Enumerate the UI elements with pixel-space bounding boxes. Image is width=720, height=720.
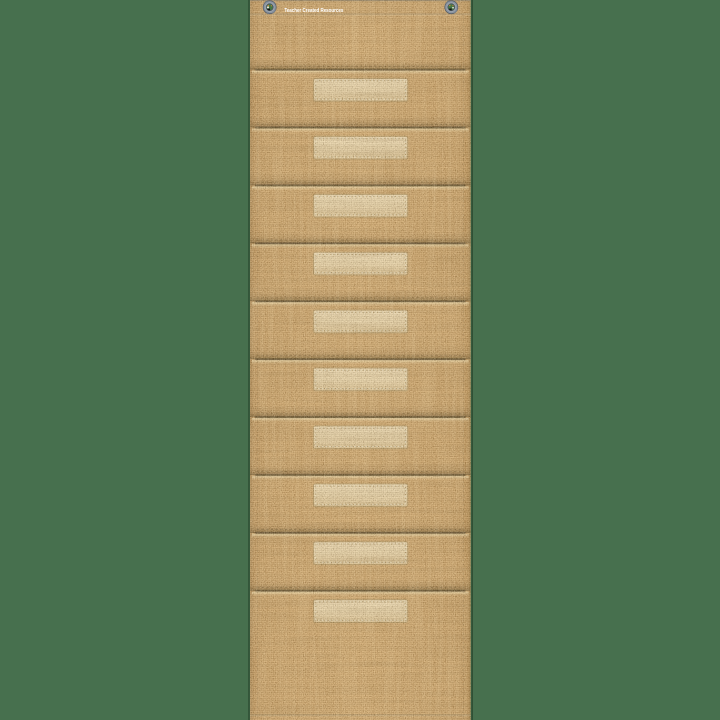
svg-text:Teacher Created Resources: Teacher Created Resources: [284, 8, 343, 14]
